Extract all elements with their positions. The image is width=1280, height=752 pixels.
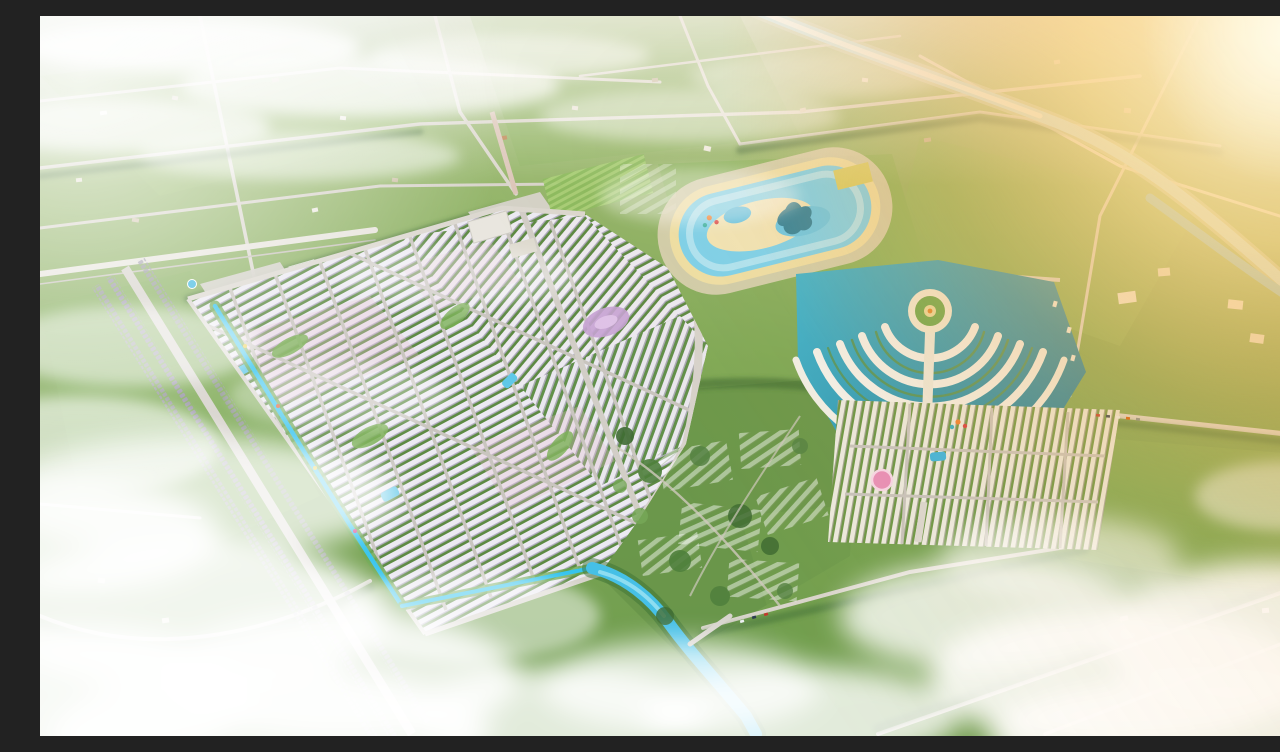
aerial-masterplan-render bbox=[40, 16, 1280, 736]
scene-canvas bbox=[40, 16, 1280, 736]
sun-glare bbox=[40, 16, 1280, 736]
